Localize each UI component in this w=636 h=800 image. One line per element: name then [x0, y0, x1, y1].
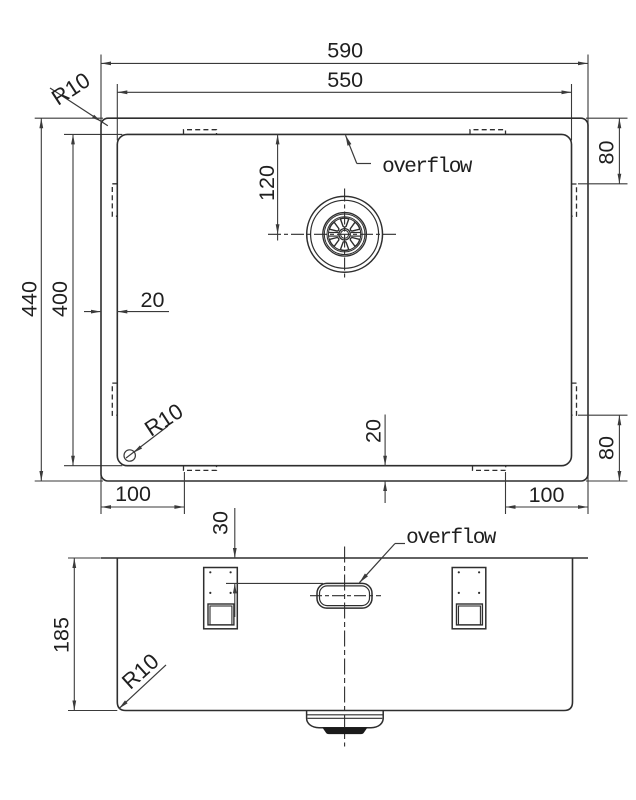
- svg-text:185: 185: [50, 617, 74, 653]
- svg-text:20: 20: [141, 288, 165, 312]
- svg-text:400: 400: [48, 281, 72, 317]
- svg-text:80: 80: [595, 436, 619, 460]
- svg-text:30: 30: [209, 511, 233, 535]
- svg-text:590: 590: [327, 39, 363, 63]
- svg-text:80: 80: [595, 141, 619, 165]
- svg-text:120: 120: [255, 165, 279, 201]
- svg-text:100: 100: [529, 483, 565, 507]
- svg-text:440: 440: [18, 281, 42, 317]
- svg-text:550: 550: [327, 68, 363, 92]
- svg-text:100: 100: [115, 482, 151, 506]
- svg-text:overflow: overflow: [382, 156, 473, 179]
- svg-text:20: 20: [362, 419, 386, 443]
- svg-text:overflow: overflow: [406, 527, 497, 550]
